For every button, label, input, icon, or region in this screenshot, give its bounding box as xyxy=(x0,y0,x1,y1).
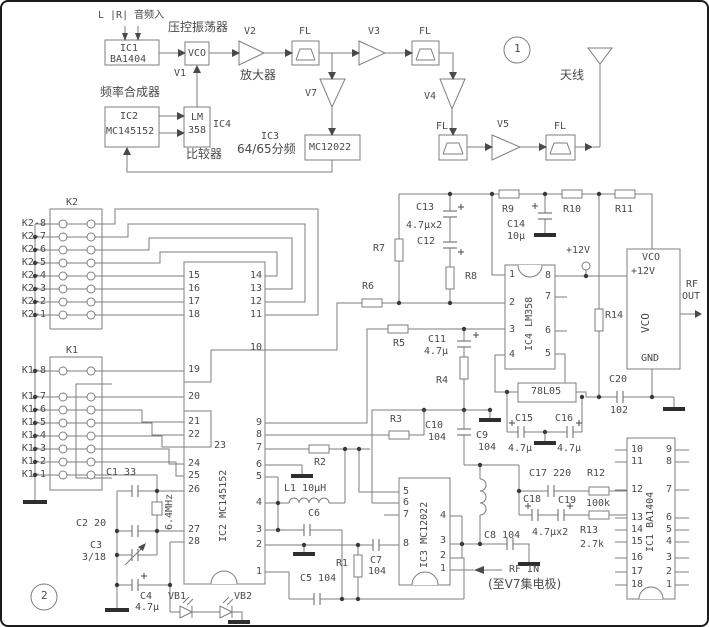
label-vb1: VB1 xyxy=(168,591,186,603)
ic1-pin: 14 xyxy=(631,524,643,536)
label-c9-value: 104 xyxy=(478,442,496,454)
antenna-label: 天线 xyxy=(560,69,584,83)
ic3-pin: 5 xyxy=(403,486,409,498)
label-c15-value: 4.7μ xyxy=(508,443,532,455)
k2-row-label: K2-8 xyxy=(2,218,46,230)
k2-row-label: K2-3 xyxy=(2,283,46,295)
label-r12: R12 xyxy=(587,468,605,480)
label-c3-value: 3/18 xyxy=(82,552,106,564)
label-fl-4: FL xyxy=(554,121,566,133)
ic3-chip-name: IC3 MC12022 xyxy=(419,502,431,568)
label-c11: C11 xyxy=(428,334,446,346)
ic2-pin: 3 xyxy=(248,524,262,536)
label-rf-in-note: (至V7集电极) xyxy=(488,578,561,592)
label-r3: R3 xyxy=(390,414,402,426)
ic1-pin: 15 xyxy=(631,536,643,548)
k2-title: K2 xyxy=(66,197,78,209)
label-78l05: 78L05 xyxy=(531,386,561,398)
label-c14: C14 xyxy=(507,219,525,231)
label-c11-value: 4.7μ xyxy=(424,346,448,358)
label-c20-value: 102 xyxy=(610,405,628,417)
vco-cn-label: 压控振荡器 xyxy=(168,21,228,35)
ic4-pin: 1 xyxy=(509,269,515,281)
ic2-pin: 16 xyxy=(188,283,200,295)
label-v7: V7 xyxy=(305,88,317,100)
label-c14-value: 10μ xyxy=(507,231,525,243)
blk-ic1-ref: IC1 xyxy=(120,43,138,55)
ic1-pin: 3 xyxy=(654,552,672,564)
label-ic3: IC3 xyxy=(261,131,279,143)
freq-synth-label: 频率合成器 xyxy=(100,86,160,100)
ic3-pin: 1 xyxy=(432,563,446,575)
label-r13: R13 xyxy=(580,525,598,537)
label-v5: V5 xyxy=(497,119,509,131)
ic3-pin: 3 xyxy=(432,535,446,547)
k1-title: K1 xyxy=(66,345,78,357)
ic2-pin: 2 xyxy=(248,539,262,551)
ic4-pin: 4 xyxy=(509,349,515,361)
ic4-pin: 3 xyxy=(509,324,515,336)
label-r6: R6 xyxy=(362,281,374,293)
label-c19: C19 xyxy=(558,495,576,507)
label-c5: C5 104 xyxy=(300,573,336,585)
label-c7-value: 104 xyxy=(368,566,386,578)
ic1-pin: 17 xyxy=(631,566,643,578)
label-c7: C7 xyxy=(370,555,382,567)
ic2-pin: 11 xyxy=(248,309,262,321)
label-c18: C18 xyxy=(523,494,541,506)
label-c10: C10 xyxy=(425,420,443,432)
ic2-pin: 4 xyxy=(248,497,262,509)
rf-out-line2: OUT xyxy=(682,291,700,303)
ic3-pin: 8 xyxy=(403,538,409,550)
label-c13-value: 4.7μx2 xyxy=(406,220,442,232)
label-r4: R4 xyxy=(436,375,448,387)
blk-vco: VCO xyxy=(188,48,206,60)
ic1-pin: 1 xyxy=(654,579,672,591)
label-c17: C17 220 xyxy=(529,468,571,480)
label-v1: V1 xyxy=(174,68,186,80)
ic2-pin: 23 xyxy=(214,440,226,452)
amp-cn-label: 放大器 xyxy=(240,69,276,83)
label-r7: R7 xyxy=(373,243,385,255)
vco-box-vertical: VCO xyxy=(640,313,653,333)
blk-ic1-part: BA1404 xyxy=(110,54,146,66)
ic2-pin: 21 xyxy=(188,416,200,428)
ic3-pin: 4 xyxy=(432,510,446,522)
ic2-pin: 20 xyxy=(188,391,200,403)
label-fl-1: FL xyxy=(299,26,311,38)
label-c2: C2 20 xyxy=(76,518,106,530)
k1-row-label: K1-8 xyxy=(2,365,46,377)
ic2-pin: 9 xyxy=(248,417,262,429)
ic4-pin: 6 xyxy=(537,325,551,337)
ic4-pin: 7 xyxy=(537,291,551,303)
label-r1: R1 xyxy=(336,558,348,570)
ic2-pin: 1 xyxy=(248,566,262,578)
ic2-pin: 14 xyxy=(248,270,262,282)
label-c10-value: 104 xyxy=(428,432,446,444)
label-ic4: IC4 xyxy=(213,119,231,131)
label-c3: C3 xyxy=(90,540,102,552)
k1-row-label: K1-7 xyxy=(2,391,46,403)
ic1-pin: 12 xyxy=(631,484,643,496)
ic4-pin: 8 xyxy=(537,270,551,282)
ic1-pin: 18 xyxy=(631,579,643,591)
ic2-pin: 6 xyxy=(248,459,262,471)
k1-row-label: K1-1 xyxy=(2,469,46,481)
k1-row-label: K1-5 xyxy=(2,417,46,429)
k2-row-label: K2-6 xyxy=(2,244,46,256)
label-v3: V3 xyxy=(368,26,380,38)
ic2-pin: 12 xyxy=(248,296,262,308)
k2-row-label: K2-1 xyxy=(2,309,46,321)
ic2-pin: 19 xyxy=(188,364,200,376)
comparator-label: 比较器 xyxy=(186,148,222,162)
label-c4-value: 4.7μ xyxy=(135,602,159,614)
label-c16: C16 xyxy=(555,413,573,425)
circuit-wires xyxy=(35,194,695,620)
label-c4: C4 xyxy=(140,591,152,603)
k1-row-label: K1-2 xyxy=(2,456,46,468)
ic1-pin: 11 xyxy=(631,456,643,468)
ic1-pin: 8 xyxy=(654,456,672,468)
rf-out-line1: RF xyxy=(686,279,698,291)
label-r10: R10 xyxy=(563,204,581,216)
ic2-chip-name: IC2 MC145152 xyxy=(218,470,230,542)
label-fl-3: FL xyxy=(436,121,448,133)
k2-row-label: K2-2 xyxy=(2,296,46,308)
ic3-pin: 2 xyxy=(432,550,446,562)
ic2-pin: 26 xyxy=(188,484,200,496)
ic2-pin: 27 xyxy=(188,524,200,536)
blk-lm: LM xyxy=(191,112,203,124)
vco-box-supply: +12V xyxy=(631,266,655,278)
ic2-pin: 8 xyxy=(248,429,262,441)
ic2-pin: 10 xyxy=(248,342,262,354)
section2-number: 2 xyxy=(41,590,48,603)
ic1-pin: 5 xyxy=(654,524,672,536)
vco-box-gnd: GND xyxy=(641,353,659,365)
k2-row-label: K2-5 xyxy=(2,257,46,269)
label-v4: V4 xyxy=(424,91,436,103)
ic2-pin: 25 xyxy=(188,470,200,482)
label-fl-2: FL xyxy=(419,26,431,38)
label-c15: C15 xyxy=(515,413,533,425)
label-r5: R5 xyxy=(393,338,405,350)
ic2-pin: 5 xyxy=(248,471,262,483)
k1-row-label: K1-4 xyxy=(2,430,46,442)
label-r2: R2 xyxy=(314,457,326,469)
label-c16-value: 4.7μ xyxy=(557,443,581,455)
label-r14: R14 xyxy=(605,310,623,322)
label-vb2: VB2 xyxy=(234,591,252,603)
blk-ic2-ref: IC2 xyxy=(120,111,138,123)
ic1-pin: 10 xyxy=(631,444,643,456)
k2-row-label: K2-4 xyxy=(2,270,46,282)
label-r8: R8 xyxy=(465,271,477,283)
ic1-pin: 16 xyxy=(631,552,643,564)
ic2-pin: 18 xyxy=(188,309,200,321)
k1-row-label: K1-6 xyxy=(2,404,46,416)
ic2-pin: 22 xyxy=(188,429,200,441)
ic1-pin: 13 xyxy=(631,512,643,524)
ic2-pin: 7 xyxy=(248,442,262,454)
ic2-pin: 28 xyxy=(188,536,200,548)
ic2-pin: 13 xyxy=(248,283,262,295)
ic1-pin: 6 xyxy=(654,512,672,524)
label-r13-value: 2.7k xyxy=(580,539,604,551)
label-rf-in: RF IN xyxy=(509,564,539,576)
label-r12-value: 100k xyxy=(586,498,610,510)
label-c6: C6 xyxy=(308,508,320,520)
label-r11: R11 xyxy=(615,204,633,216)
ic4-chip-name: IC4 LM358 xyxy=(524,297,536,351)
ic1-pin: 7 xyxy=(654,484,672,496)
ic3-pin: 6 xyxy=(403,497,409,509)
schematic-page: L |R| 音频入 IC1 BA1404 压控振荡器 VCO V1 V2 放大器… xyxy=(0,0,709,627)
ic4-pin: 5 xyxy=(537,348,551,360)
ic2-pin: 15 xyxy=(188,270,200,282)
k1-row-label: K1-3 xyxy=(2,443,46,455)
ic1-chip-name: IC1 BA1404 xyxy=(645,492,657,552)
ic3-pin: 7 xyxy=(403,509,409,521)
ic4-pin: 2 xyxy=(509,297,515,309)
vco-box-title: VCO xyxy=(642,252,660,264)
label-crystal: 6.4MHz xyxy=(164,494,176,530)
audio-input-label: L |R| 音频入 xyxy=(98,10,164,22)
label-c9: C9 xyxy=(476,430,488,442)
blk-358: 358 xyxy=(188,125,206,137)
label-c1: C1 33 xyxy=(106,467,136,479)
ic2-pin: 17 xyxy=(188,296,200,308)
ic1-pin: 9 xyxy=(654,444,672,456)
label-l1: L1 10μH xyxy=(284,483,326,495)
blk-mc12022: MC12022 xyxy=(309,142,351,154)
ic2-pin: 24 xyxy=(188,458,200,470)
divider-label: 64/65分频 xyxy=(237,143,296,157)
ic1-pin: 4 xyxy=(654,536,672,548)
label-c12: C12 xyxy=(417,236,435,248)
ic1-pin: 2 xyxy=(654,566,672,578)
label-r9: R9 xyxy=(502,204,514,216)
blk-ic2-part: MC145152 xyxy=(106,126,154,138)
label-c8: C8 104 xyxy=(484,530,520,542)
label-c13: C13 xyxy=(416,202,434,214)
label-c18c19-value: 4.7μx2 xyxy=(532,527,568,539)
section1-number: 1 xyxy=(514,43,521,56)
label-c20: C20 xyxy=(609,374,627,386)
label-v2: V2 xyxy=(244,26,256,38)
label-plus12v: +12V xyxy=(566,245,590,257)
k2-row-label: K2-7 xyxy=(2,231,46,243)
